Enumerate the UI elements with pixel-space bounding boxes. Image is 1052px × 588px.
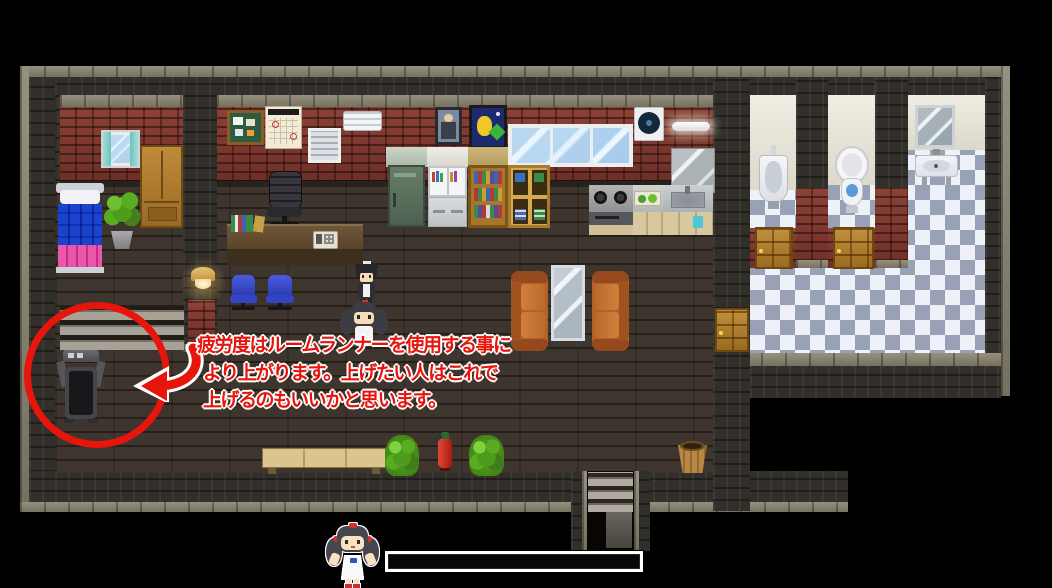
- toilet[interactable]: [835, 146, 869, 216]
- stove[interactable]: [589, 185, 633, 235]
- bookshelf-short[interactable]: [508, 165, 550, 228]
- stall-divider-1-brick: [796, 188, 828, 268]
- fluorescent-light: [672, 118, 712, 138]
- couch-right[interactable]: [592, 271, 629, 351]
- office-chair-black[interactable]: [265, 171, 304, 229]
- calendar: [265, 106, 302, 149]
- bush-1: [385, 435, 419, 476]
- kitchen-sink[interactable]: [663, 185, 713, 235]
- wall-lamp: [186, 261, 220, 305]
- annotation-line-2: より上がります。上げたい人はこれで: [203, 358, 498, 385]
- exit-stairs[interactable]: [588, 472, 633, 512]
- big-window: [508, 124, 633, 167]
- annotation-arrow: [131, 342, 205, 402]
- wall-left-face: [29, 77, 55, 506]
- couch-left[interactable]: [511, 271, 548, 351]
- fire-extinguisher[interactable]: [430, 430, 459, 472]
- wall-right-cap: [1001, 66, 1010, 396]
- stall-divider-1-cap: [796, 260, 828, 268]
- standing-mirror: [551, 265, 585, 349]
- wardrobe[interactable]: [140, 145, 183, 228]
- fatigue-gauge: [385, 551, 643, 572]
- stall-door-2[interactable]: [833, 227, 874, 269]
- player-sprite: [325, 520, 380, 588]
- game-scene[interactable]: 疲労度はルームランナーを使用する事に より上がります。上げたい人はこれで 上げる…: [0, 0, 1052, 588]
- shutter-window: [308, 128, 341, 163]
- display-cabinet[interactable]: [427, 147, 468, 228]
- exit-corridor[interactable]: [571, 471, 650, 551]
- bathroom-sink[interactable]: [915, 149, 958, 189]
- office-chair-blue-2[interactable]: [265, 275, 295, 311]
- bedroom-wall-cap: [60, 95, 183, 107]
- wing-bottom-face: [737, 366, 1001, 398]
- poster-abstract: [469, 105, 507, 149]
- desk-books: [231, 215, 253, 232]
- bed[interactable]: [56, 183, 104, 273]
- curtain-right: [130, 132, 138, 166]
- desk[interactable]: [227, 224, 363, 265]
- poster-portrait: [435, 107, 462, 145]
- stall-divider-2-brick: [875, 188, 908, 268]
- office-chair-blue-1[interactable]: [229, 275, 258, 311]
- potted-plant-bedroom: [103, 187, 141, 249]
- bathroom-mirror: [915, 105, 955, 148]
- bedroom-window: [101, 130, 140, 168]
- stall-door-1[interactable]: [755, 227, 793, 269]
- annotation-line-3: 上げるのもいいかと思います。: [203, 385, 446, 412]
- annotation-line-1: 疲労度はルームランナーを使用する事に: [197, 330, 510, 357]
- wall-vent: [343, 111, 382, 131]
- stall-divider-2-cap: [875, 260, 908, 268]
- kitchen-counter: [633, 185, 663, 235]
- bulletin-board: [227, 110, 264, 145]
- urinal[interactable]: [759, 145, 788, 217]
- bookshelf-tall[interactable]: [468, 147, 508, 228]
- stall-divider-2: [875, 77, 908, 188]
- bathroom-entry-door[interactable]: [715, 308, 749, 352]
- exit-path: [606, 512, 632, 548]
- wing-bottom-cap: [737, 353, 1001, 366]
- wooden-bucket: [678, 441, 707, 475]
- curtain-left: [103, 132, 111, 166]
- wall-divider-bathroom: [713, 77, 750, 511]
- bush-2: [469, 435, 504, 476]
- wall-right-face: [985, 77, 1001, 353]
- cup: [693, 216, 703, 228]
- wall-left-cap: [20, 66, 29, 512]
- wall-top-cap: [20, 66, 1010, 77]
- stall-divider-1: [796, 77, 828, 188]
- locker-green[interactable]: [386, 147, 427, 228]
- ventilation-fan: [634, 107, 664, 141]
- desk-phone: [313, 231, 338, 249]
- bench[interactable]: [262, 448, 386, 475]
